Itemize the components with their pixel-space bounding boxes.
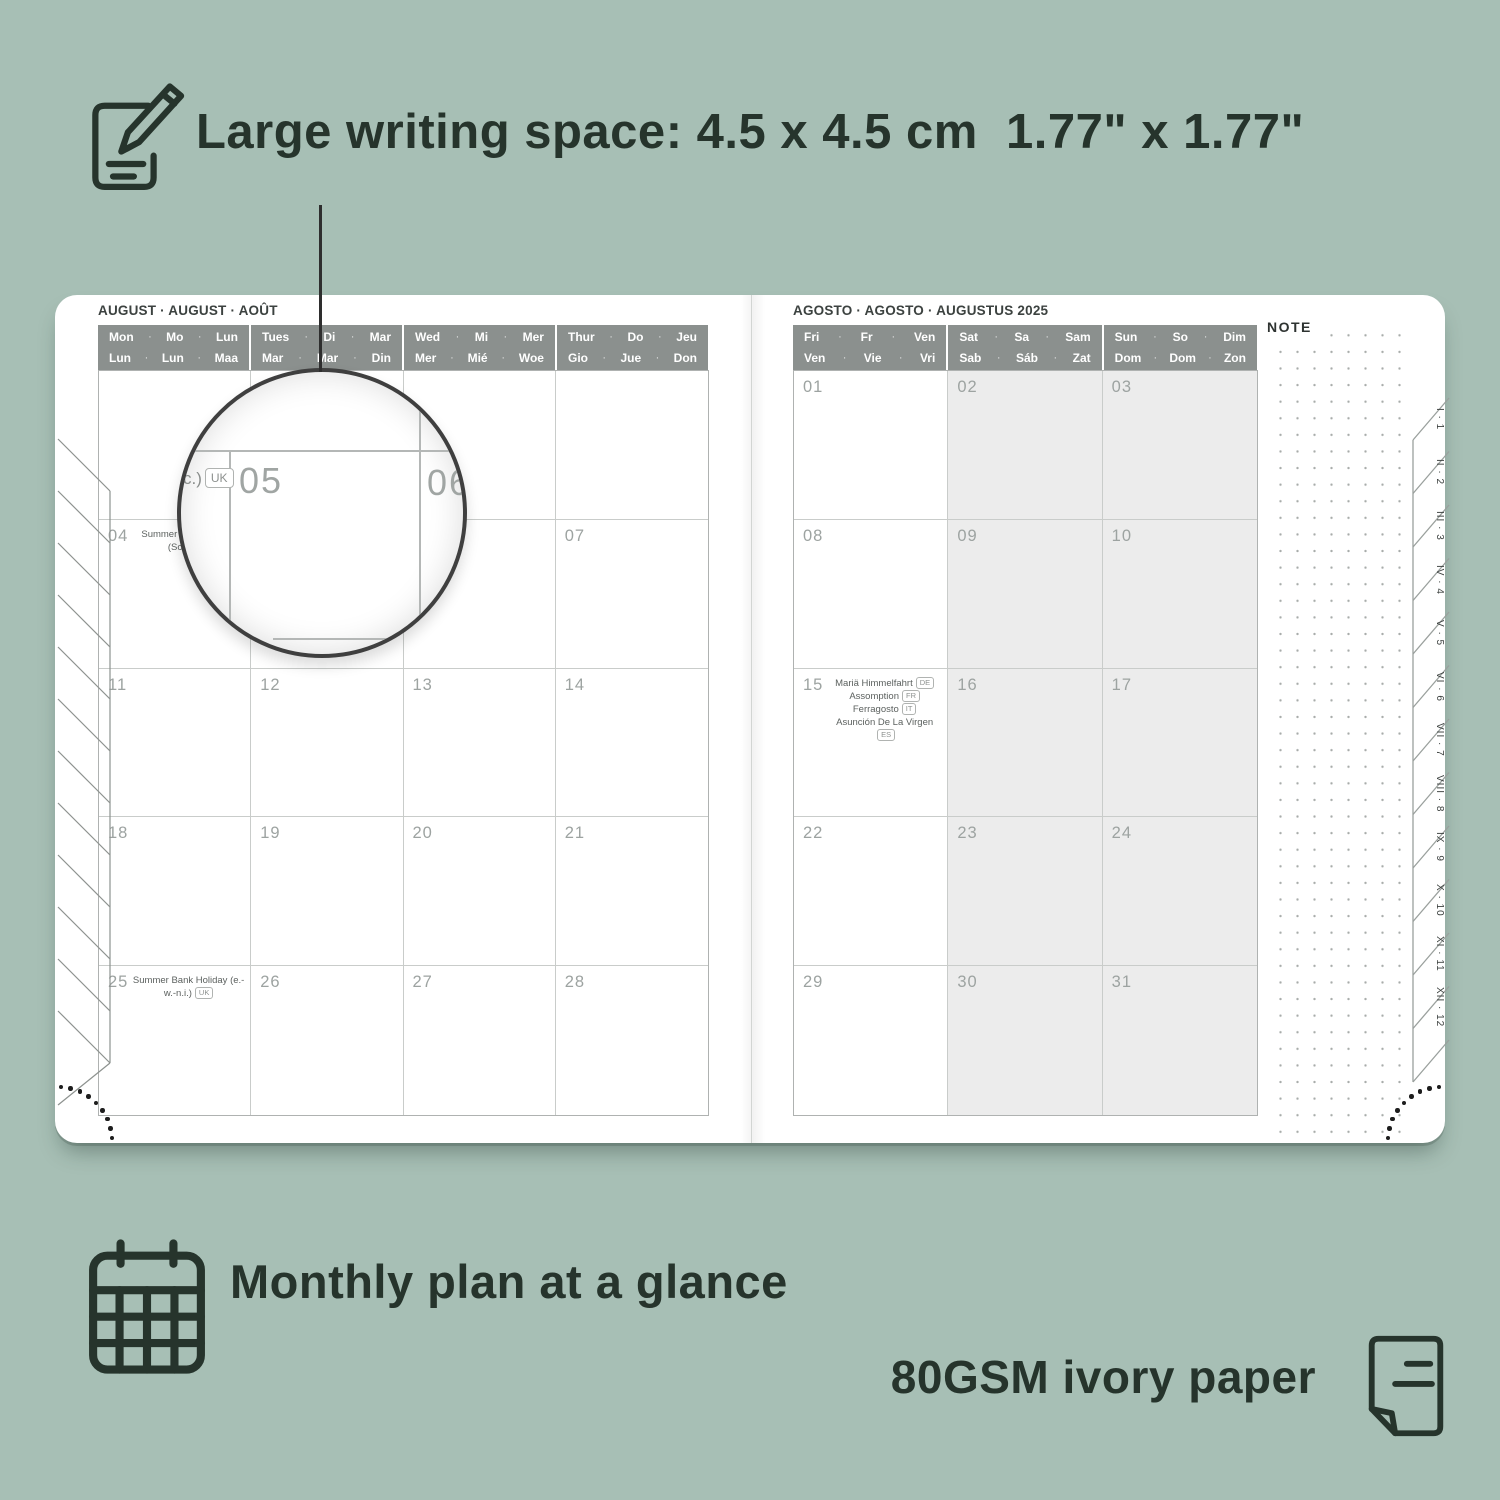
day-number: 10 [1112, 527, 1132, 546]
header-separator: · [198, 331, 202, 343]
holiday-entry: Mariä HimmelfahrtDE [826, 677, 943, 690]
day-header-line: Mon·Mo·Lun [98, 327, 249, 348]
calendar-day-cell: 31 [1103, 966, 1257, 1115]
holiday-name: Ferragosto [853, 704, 899, 715]
month-tab: V · 5 [1423, 609, 1445, 657]
calendar-day-cell: 25Summer Bank Holiday (e.-w.-n.i.)UK [99, 966, 251, 1115]
calendar-day-cell: 13 [404, 669, 556, 818]
day-header-line: Sat·Sa·Sam [948, 327, 1101, 348]
month-tab: I · 1 [1423, 395, 1445, 443]
arc-dot [100, 1108, 105, 1113]
day-number: 01 [803, 378, 823, 397]
calendar-day-cell: 20 [404, 817, 556, 966]
magnified-grid-line [419, 372, 421, 640]
arc-dot [1387, 1126, 1392, 1131]
day-label: Sáb [1016, 351, 1038, 365]
header-separator: · [658, 331, 662, 343]
header-separator: · [298, 352, 302, 364]
headline-paper: 80GSM ivory paper [891, 1350, 1316, 1404]
day-number: 08 [803, 527, 823, 546]
day-header-line: Sab·Sáb·Zat [948, 348, 1101, 369]
day-label: Mo [166, 330, 183, 344]
day-number: 27 [413, 973, 433, 992]
magnified-holiday-fragment: c.)UK [183, 468, 234, 489]
arc-dot [86, 1094, 91, 1099]
day-label: Mar [370, 330, 391, 344]
holiday-entry: Summer Bank Holiday (e.-w.-n.i.)UK [131, 974, 246, 1000]
country-badge: ES [877, 729, 895, 741]
day-label: Mon [109, 330, 134, 344]
day-label: Lun [109, 351, 131, 365]
country-badge: FR [902, 690, 920, 702]
arc-dot [105, 1117, 110, 1122]
header-separator: · [1204, 331, 1208, 343]
right-page-title: AGOSTO · AGOSTO · AUGUSTUS 2025 [793, 303, 1048, 318]
day-label: Mer [523, 330, 544, 344]
day-label: Jue [620, 351, 641, 365]
day-label: Gio [568, 351, 588, 365]
day-number: 14 [565, 676, 585, 695]
calendar-day-cell: 15Mariä HimmelfahrtDEAssomptionFRFerrago… [794, 669, 948, 818]
note-label: NOTE [1267, 319, 1322, 338]
day-label: Jeu [676, 330, 697, 344]
day-header-group: Fri·Fr·VenVen·Vie·Vri [793, 325, 946, 370]
day-label: Dom [1169, 351, 1196, 365]
holiday-entry: AssomptionFR [826, 690, 943, 703]
header-separator: · [1153, 331, 1157, 343]
calendar-day-cell: 24 [1103, 817, 1257, 966]
calendar-day-cell: 23 [948, 817, 1102, 966]
calendar-day-cell [556, 371, 708, 520]
month-tab: IX · 9 [1423, 823, 1445, 871]
day-number: 15 [803, 676, 823, 695]
day-number: 19 [260, 824, 280, 843]
day-label: Mié [468, 351, 488, 365]
holiday-name: Asunción De La Virgen [836, 717, 933, 728]
day-label: Zon [1224, 351, 1246, 365]
day-number: 20 [413, 824, 433, 843]
month-tab: II · 2 [1423, 449, 1445, 497]
day-label: Ven [804, 351, 825, 365]
holiday-list: Mariä HimmelfahrtDEAssomptionFRFerragost… [826, 677, 943, 742]
arc-dot [110, 1136, 115, 1141]
month-tab: VII · 7 [1423, 716, 1445, 764]
calendar-day-cell: 11 [99, 669, 251, 818]
day-number: 29 [803, 973, 823, 992]
day-number: 31 [1112, 973, 1132, 992]
header-separator: · [1053, 352, 1057, 364]
day-label: Dom [1115, 351, 1142, 365]
day-label: Thur [568, 330, 595, 344]
day-label: Din [372, 351, 391, 365]
header-separator: · [609, 331, 613, 343]
day-label: Sab [959, 351, 981, 365]
calendar-icon [86, 1237, 208, 1377]
day-label: So [1173, 330, 1188, 344]
day-header-line: Ven·Vie·Vri [793, 348, 946, 369]
day-number: 16 [957, 676, 977, 695]
day-label: Lun [162, 351, 184, 365]
calendar-day-cell: 10 [1103, 520, 1257, 669]
day-header-line: Mer·Mié·Woe [404, 348, 555, 369]
day-number: 07 [565, 527, 585, 546]
calendar-day-cell: 14 [556, 669, 708, 818]
calendar-day-cell: 18 [99, 817, 251, 966]
fragment-text: c.) [183, 469, 202, 488]
month-tab: VIII · 8 [1423, 770, 1445, 818]
day-number: 09 [957, 527, 977, 546]
calendar-day-cell: 03 [1103, 371, 1257, 520]
header-separator: · [656, 352, 660, 364]
planner-spread: AUGUST · AUGUST · AOÛT AGOSTO · AGOSTO ·… [55, 295, 1445, 1143]
arc-dot [1409, 1094, 1414, 1099]
month-tab: X · 10 [1423, 877, 1445, 925]
country-badge: UK [195, 987, 213, 999]
header-separator: · [456, 331, 460, 343]
header-separator: · [994, 331, 998, 343]
holiday-entry: Asunción De La VirgenES [826, 716, 943, 742]
day-header-line: Fri·Fr·Ven [793, 327, 946, 348]
left-day-header: Mon·Mo·LunLun·Lun·MaaTues·Di·MarMar·Mar·… [98, 325, 708, 370]
calendar-day-cell: 08 [794, 520, 948, 669]
holiday-entry: FerragostoIT [826, 703, 943, 716]
day-label: Sat [959, 330, 978, 344]
day-header-group: Wed·Mi·MerMer·Mié·Woe [404, 325, 555, 370]
calendar-day-cell: 01 [794, 371, 948, 520]
day-label: Maa [215, 351, 238, 365]
day-header-line: Thur·Do·Jeu [557, 327, 708, 348]
header-separator: · [351, 331, 355, 343]
day-label: Zat [1073, 351, 1091, 365]
calendar-day-cell: 12 [251, 669, 403, 818]
calendar-day-cell: 02 [948, 371, 1102, 520]
day-number: 02 [957, 378, 977, 397]
header-separator: · [602, 352, 606, 364]
day-label: Wed [415, 330, 440, 344]
header-separator: · [843, 352, 847, 364]
calendar-day-cell: 27 [404, 966, 556, 1115]
month-tab: XII · 12 [1423, 984, 1445, 1032]
header-separator: · [838, 331, 842, 343]
day-number: 28 [565, 973, 585, 992]
month-tab: VI · 6 [1423, 663, 1445, 711]
calendar-day-cell: 21 [556, 817, 708, 966]
holiday-name: Summer Bank Holiday (e.-w.-n.i.) [133, 975, 244, 999]
day-number: 23 [957, 824, 977, 843]
day-header-line: Dom·Dom·Zon [1104, 348, 1257, 369]
day-header-group: Tues·Di·MarMar·Mar·Din [251, 325, 402, 370]
holiday-list: Summer Bank Holiday (e.-w.-n.i.)UK [131, 974, 246, 1000]
day-header-group: Mon·Mo·LunLun·Lun·Maa [98, 325, 249, 370]
day-number: 21 [565, 824, 585, 843]
country-badge: DE [916, 677, 934, 689]
day-label: Sam [1065, 330, 1090, 344]
month-tab: IV · 4 [1423, 556, 1445, 604]
header-separator: · [501, 352, 505, 364]
arc-dot [68, 1086, 73, 1091]
day-label: Do [627, 330, 643, 344]
headline-writing-space: Large writing space: 4.5 x 4.5 cm 1.77" … [196, 104, 1304, 160]
right-month-grid: 01020308091015Mariä HimmelfahrtDEAssompt… [793, 370, 1258, 1116]
calendar-day-cell: 07 [556, 520, 708, 669]
calendar-day-cell: 30 [948, 966, 1102, 1115]
arc-dot [1386, 1136, 1391, 1141]
day-header-line: Mar·Mar·Din [251, 348, 402, 369]
day-label: Vie [864, 351, 882, 365]
day-label: Tues [262, 330, 289, 344]
header-separator: · [353, 352, 357, 364]
header-separator: · [504, 331, 508, 343]
header-separator: · [145, 352, 149, 364]
day-label: Woe [519, 351, 544, 365]
month-tab: III · 3 [1423, 502, 1445, 550]
writing-pad-pencil-icon [86, 80, 190, 196]
day-label: Mar [262, 351, 283, 365]
day-label: Don [674, 351, 697, 365]
right-day-header: Fri·Fr·VenVen·Vie·VriSat·Sa·SamSab·Sáb·Z… [793, 325, 1257, 370]
day-label: Sun [1115, 330, 1138, 344]
day-label: Dim [1223, 330, 1246, 344]
callout-pointer-line [319, 205, 322, 372]
magnified-grid-line [181, 450, 463, 452]
day-number: 13 [413, 676, 433, 695]
calendar-day-cell: 19 [251, 817, 403, 966]
binding-shade [741, 295, 765, 1143]
calendar-day-cell: 09 [948, 520, 1102, 669]
header-separator: · [1208, 352, 1212, 364]
calendar-day-cell: 22 [794, 817, 948, 966]
binding-line [751, 295, 752, 1143]
day-header-group: Sat·Sa·SamSab·Sáb·Zat [948, 325, 1101, 370]
holiday-name: Assomption [849, 691, 899, 702]
header-separator: · [304, 331, 308, 343]
left-edge-tab-cuts [55, 425, 115, 1115]
country-badge: IT [902, 703, 917, 715]
arc-dot [108, 1126, 113, 1131]
header-separator: · [1153, 352, 1157, 364]
magnified-day-05: 05 [239, 460, 283, 502]
day-header-line: Lun·Lun·Maa [98, 348, 249, 369]
day-header-line: Tues·Di·Mar [251, 327, 402, 348]
header-separator: · [891, 331, 895, 343]
calendar-day-cell: 26 [251, 966, 403, 1115]
magnifier-circle: c.)UK 05 06 [177, 368, 467, 658]
day-label: Mi [475, 330, 488, 344]
arc-dot [1427, 1086, 1432, 1091]
day-label: Mer [415, 351, 436, 365]
day-number: 26 [260, 973, 280, 992]
day-label: Fri [804, 330, 819, 344]
day-header-line: Wed·Mi·Mer [404, 327, 555, 348]
left-page-title: AUGUST · AUGUST · AOÛT [98, 303, 278, 318]
day-number: 12 [260, 676, 280, 695]
day-header-line: Sun·So·Dim [1104, 327, 1257, 348]
month-tab: XI · 11 [1423, 930, 1445, 978]
header-separator: · [197, 352, 201, 364]
day-label: Lun [216, 330, 238, 344]
arc-dot [1395, 1108, 1400, 1113]
note-dot-grid [1266, 321, 1408, 1136]
day-number: 22 [803, 824, 823, 843]
calendar-day-cell: 17 [1103, 669, 1257, 818]
day-label: Di [323, 330, 335, 344]
holiday-name: Mariä Himmelfahrt [835, 678, 913, 689]
day-header-group: Sun·So·DimDom·Dom·Zon [1104, 325, 1257, 370]
header-separator: · [899, 352, 903, 364]
calendar-day-cell: 16 [948, 669, 1102, 818]
day-header-group: Thur·Do·JeuGio·Jue·Don [557, 325, 708, 370]
magnified-day-06: 06 [427, 462, 467, 504]
day-number: 30 [957, 973, 977, 992]
header-separator: · [1045, 331, 1049, 343]
header-separator: · [997, 352, 1001, 364]
day-label: Sa [1014, 330, 1029, 344]
day-label: Fr [861, 330, 873, 344]
day-number: 03 [1112, 378, 1132, 397]
headline-monthly-plan: Monthly plan at a glance [230, 1254, 788, 1309]
day-label: Ven [914, 330, 935, 344]
day-label: Vri [920, 351, 935, 365]
header-separator: · [148, 331, 152, 343]
day-number: 17 [1112, 676, 1132, 695]
day-header-line: Gio·Jue·Don [557, 348, 708, 369]
paper-sheet-icon [1360, 1318, 1452, 1454]
calendar-day-cell: 29 [794, 966, 948, 1115]
calendar-day-cell: 28 [556, 966, 708, 1115]
header-separator: · [450, 352, 454, 364]
day-number: 24 [1112, 824, 1132, 843]
fragment-badge: UK [205, 468, 234, 488]
magnified-grid-line [273, 638, 445, 640]
